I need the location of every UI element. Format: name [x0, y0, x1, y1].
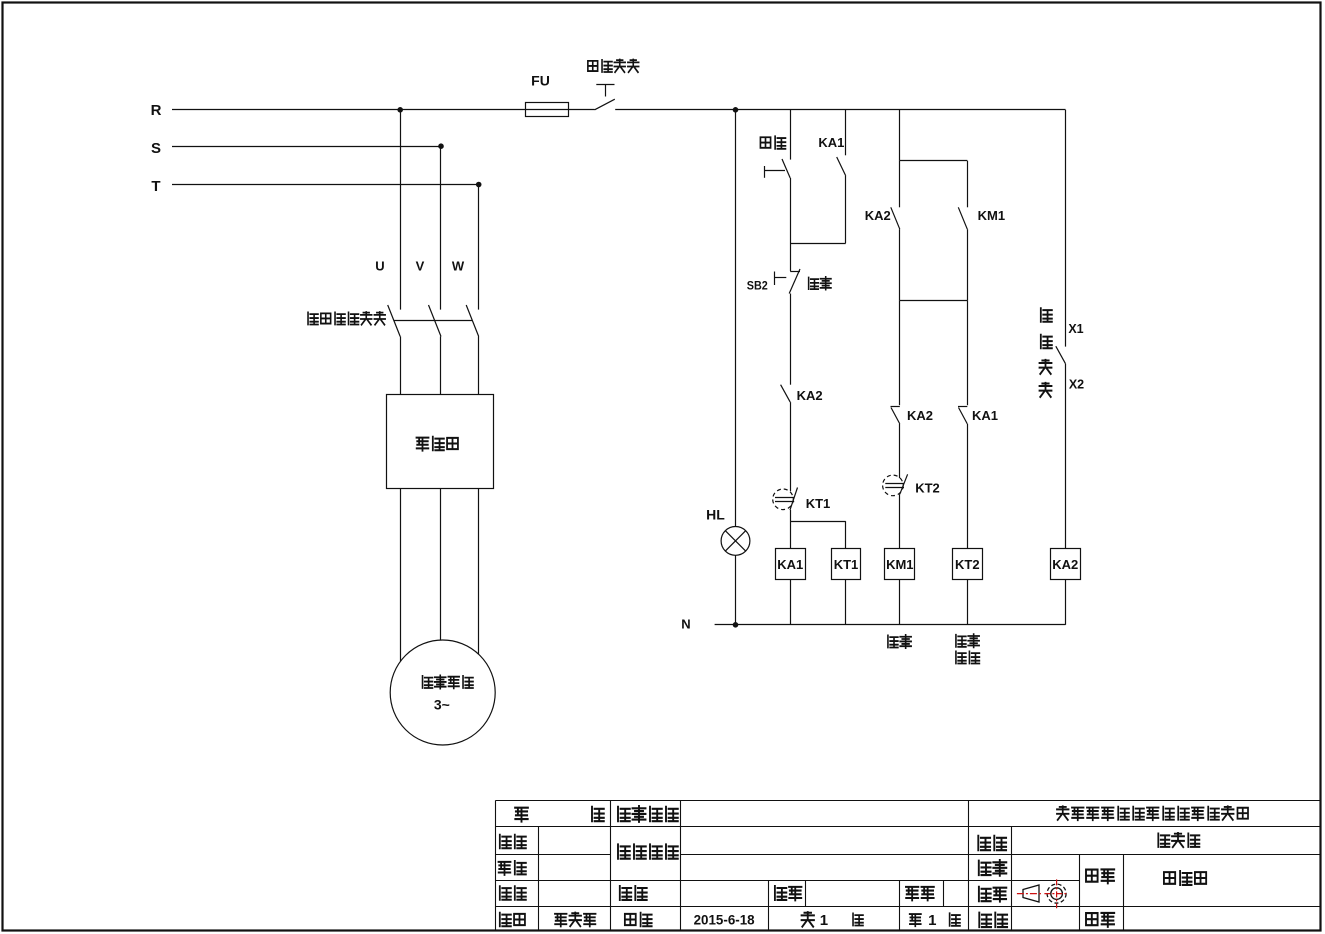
svg-text:S: S	[151, 140, 161, 157]
svg-text:X1: X1	[1068, 322, 1083, 336]
svg-text:KM1: KM1	[886, 557, 913, 572]
svg-text:KT1: KT1	[834, 557, 859, 572]
svg-text:V: V	[416, 259, 425, 274]
svg-text:KA2: KA2	[797, 388, 823, 403]
svg-text:R: R	[151, 102, 162, 119]
svg-text:2015-6-18: 2015-6-18	[694, 911, 755, 927]
svg-text:KA2: KA2	[865, 208, 891, 223]
svg-text:1: 1	[928, 912, 936, 929]
svg-text:KA2: KA2	[907, 408, 933, 423]
svg-text:U: U	[375, 259, 384, 274]
svg-text:KT2: KT2	[955, 557, 980, 572]
svg-text:KT2: KT2	[915, 481, 940, 496]
svg-text:HL: HL	[706, 506, 725, 522]
svg-text:KA1: KA1	[777, 557, 803, 572]
svg-text:KA1: KA1	[818, 135, 844, 150]
svg-text:KA2: KA2	[1052, 557, 1078, 572]
svg-text:1: 1	[820, 912, 828, 929]
svg-text:X2: X2	[1069, 377, 1084, 391]
svg-text:FU: FU	[531, 72, 550, 88]
svg-text:KT1: KT1	[806, 496, 831, 511]
svg-text:KM1: KM1	[978, 208, 1005, 223]
svg-text:W: W	[452, 259, 465, 274]
svg-text:T: T	[151, 178, 160, 195]
svg-text:KA1: KA1	[972, 408, 998, 423]
svg-text:N: N	[681, 617, 690, 632]
svg-text:3~: 3~	[434, 696, 450, 712]
svg-text:SB2: SB2	[747, 279, 768, 293]
